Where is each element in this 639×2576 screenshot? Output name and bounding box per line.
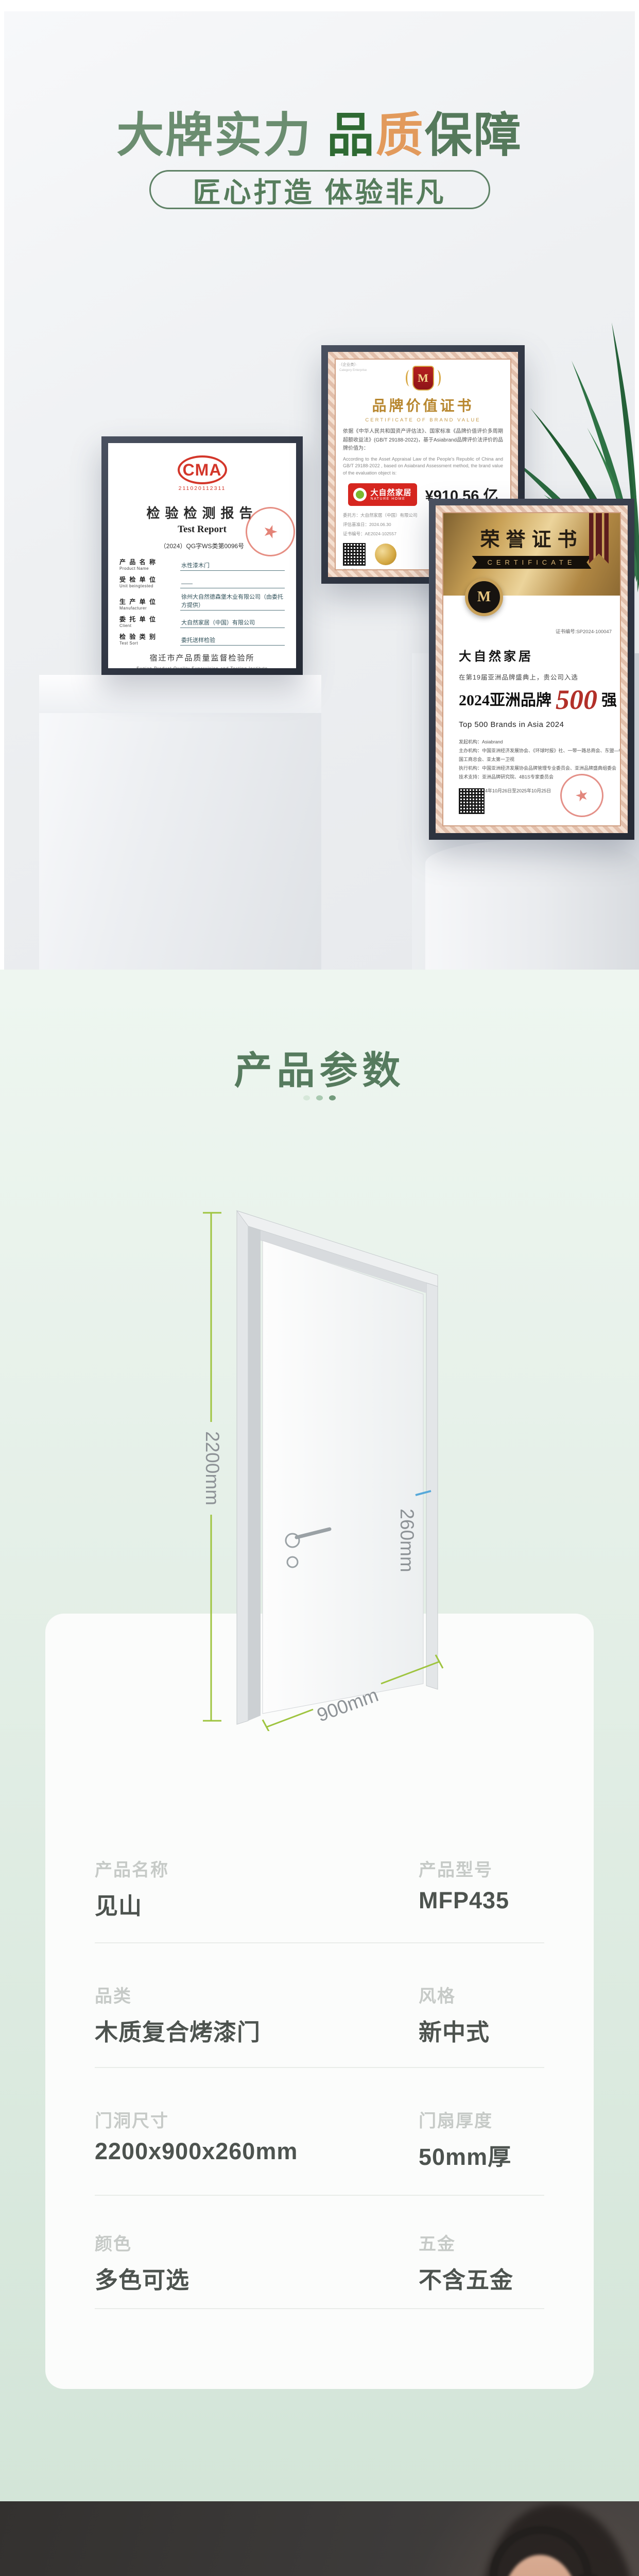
spec-value: 多色可选	[95, 2261, 189, 2295]
field-label: 生 产 单 位	[119, 597, 180, 606]
spec-label: 颜色	[95, 2230, 189, 2255]
honor-meta-lines: 发起机构：Asiabrand 主办机构：中国亚洲经济发展协会、《环球时报》社、一…	[459, 738, 621, 782]
ornate-border: 荣誉证书 CERTIFICATE M 证书编号:SP2024-100047 大自…	[436, 505, 628, 833]
medal-icon: M	[465, 578, 503, 616]
hero-title: 大牌实力 品质保障	[0, 97, 639, 165]
spec-value: 2200x900x260mm	[95, 2138, 298, 2165]
honor-intro: 在第19届亚洲品牌盛典上，贵公司入选	[459, 672, 578, 682]
divider	[95, 1942, 544, 1943]
field-label: 产 品 名 称	[119, 557, 180, 566]
spec-value: 不含五金	[419, 2261, 513, 2295]
ribbon-icon	[589, 513, 609, 564]
spec-label: 风格	[419, 1982, 490, 2007]
door-depth-label: 260mm	[396, 1509, 418, 1572]
qr-code-icon	[343, 543, 366, 566]
category-label-en: Category Enterprise	[339, 369, 367, 372]
brand-value-body-cn: 依据《中华人民共和国资产评估法》、国家标准《品牌价值评价多周期超额收益法》(GB…	[343, 428, 503, 453]
nature-home-logo: 大自然家居 NATURE HOME	[348, 483, 417, 506]
cma-number: 211020112311	[119, 485, 285, 492]
certificate-test-report-paper: CMA 211020112311 检验检测报告 Test Report （202…	[108, 443, 296, 668]
meta-host: 主办机构：中国亚洲经济发展协会、《环球时报》社、一带一路总商会、东盟—中国工商总…	[459, 747, 621, 764]
door-leaf	[263, 1241, 423, 1714]
honor-brand-name: 大自然家居	[459, 646, 533, 664]
test-report-field-row: 委 托 单 位Client 大自然家居（中国）有限公司	[119, 615, 285, 628]
hero-title-part3: 质	[376, 109, 425, 162]
award-number: 500	[556, 689, 597, 710]
meta-executor: 执行机构：中国亚洲经济发展协会品牌管理专业委员会、亚洲品牌盛典组委会	[459, 764, 621, 773]
spec-value: 新中式	[419, 2013, 490, 2047]
gold-seal-icon	[375, 544, 396, 565]
field-value: ——	[180, 581, 285, 588]
dot-icon	[316, 1095, 323, 1100]
institute-name-en: Suqian Product Quality Supervision and T…	[119, 666, 285, 668]
certificate-honor: 荣誉证书 CERTIFICATE M 证书编号:SP2024-100047 大自…	[429, 499, 634, 840]
honor-banner: CERTIFICATE	[472, 556, 591, 569]
spec-label: 产品型号	[419, 1856, 509, 1881]
hero-title-part1: 大牌实力	[116, 109, 312, 162]
spec-label: 品类	[95, 1982, 261, 2007]
honor-award-en: Top 500 Brands in Asia 2024	[459, 720, 564, 729]
field-label-en: Client	[119, 623, 180, 628]
spec-label: 门扇厚度	[419, 2107, 511, 2132]
award-suffix: 强	[601, 687, 617, 710]
brand-value-subtitle: CERTIFICATE OF BRAND VALUE	[343, 417, 503, 423]
podium-cylinder	[425, 840, 639, 970]
dot-icon	[303, 1095, 310, 1100]
test-report-fields: 产 品 名 称Product Name 水性漆木门 受 检 单 位Unit be…	[119, 557, 285, 646]
nature-home-en: NATURE HOME	[371, 497, 412, 501]
spec-value: 50mm厚	[419, 2138, 511, 2172]
field-label: 委 托 单 位	[119, 615, 180, 623]
certificate-honor-paper: 荣誉证书 CERTIFICATE M 证书编号:SP2024-100047 大自…	[442, 512, 621, 826]
field-value: 水性漆木门	[180, 561, 285, 571]
params-title: 产品参数	[0, 1040, 639, 1095]
door-frame-inner-left	[248, 1226, 261, 1721]
nature-home-cn: 大自然家居	[371, 488, 412, 497]
dot-icon	[329, 1095, 336, 1100]
field-label: 受 检 单 位	[119, 575, 180, 584]
hero-title-part2: 品	[327, 109, 376, 162]
field-label-en: Product Name	[119, 566, 180, 571]
qr-code-icon	[459, 788, 485, 814]
door-height-label: 2200mm	[202, 1431, 223, 1505]
door-frame-right	[426, 1283, 438, 1689]
m-badge-icon: M	[412, 366, 434, 391]
field-label-en: Unit beingtested	[119, 584, 180, 588]
test-report-field-row: 受 检 单 位Unit beingtested ——	[119, 575, 285, 588]
category-corner-note: ·（企业类）· Category Enterprise	[339, 362, 367, 373]
honor-award-line: 2024亚洲品牌 500 强	[459, 687, 617, 710]
cma-logo: CMA	[178, 455, 227, 484]
hero-subtitle-pill: 匠心打造 体验非凡	[149, 170, 490, 209]
podium-left	[39, 675, 321, 970]
spec-label: 门洞尺寸	[95, 2107, 298, 2132]
params-dots	[0, 1095, 639, 1100]
door-frame-left	[237, 1211, 248, 1724]
field-label-en: Manufacturer	[119, 606, 180, 611]
certificate-test-report: CMA 211020112311 检验检测报告 Test Report （202…	[101, 436, 303, 675]
test-report-field-row: 产 品 名 称Product Name 水性漆木门	[119, 557, 285, 571]
honor-cert-number: 证书编号:SP2024-100047	[556, 628, 612, 635]
product-detail-page: 大牌实力 品质保障 匠心打造 体验非凡 CMA 211020112311 检验检…	[0, 0, 639, 2576]
divider	[95, 2308, 544, 2309]
meta-initiator: 发起机构：Asiabrand	[459, 738, 621, 747]
service-section	[0, 2501, 639, 2576]
spec-value: MFP435	[419, 1887, 509, 1914]
test-report-field-row: 生 产 单 位Manufacturer 徐州大自然德森堡木业有限公司（由委托方提…	[119, 592, 285, 611]
field-label: 检 验 类 别	[119, 632, 180, 641]
spec-label: 五金	[419, 2230, 513, 2255]
field-value: 大自然家居（中国）有限公司	[180, 618, 285, 628]
nature-home-logo-icon	[353, 488, 367, 501]
field-label-en: Test Sort	[119, 641, 180, 646]
award-prefix: 2024亚洲品牌	[459, 687, 551, 710]
divider	[95, 2067, 544, 2068]
institute-name: 宿迁市产品质量监督检验所	[119, 652, 285, 663]
test-report-field-row: 检 验 类 别Test Sort 委托送样检验	[119, 632, 285, 646]
field-value: 委托送样检验	[180, 636, 285, 646]
divider	[95, 2195, 544, 2196]
spec-value: 木质复合烤漆门	[95, 2013, 261, 2047]
brand-value-title: 品牌价值证书	[343, 395, 503, 415]
door-dimension-diagram: 2200mm 260mm 900mm	[160, 1180, 453, 1731]
hero-title-part4: 保障	[425, 109, 523, 162]
brand-value-body-en: According to the Asset Appraisal Law of …	[343, 456, 503, 478]
field-value: 徐州大自然德森堡木业有限公司（由委托方提供）	[180, 592, 285, 611]
spec-value: 见山	[95, 1887, 169, 1921]
category-label: ·（企业类）·	[339, 362, 357, 367]
honor-gold-plate: 荣誉证书 CERTIFICATE	[443, 513, 620, 596]
spec-label: 产品名称	[95, 1856, 169, 1881]
